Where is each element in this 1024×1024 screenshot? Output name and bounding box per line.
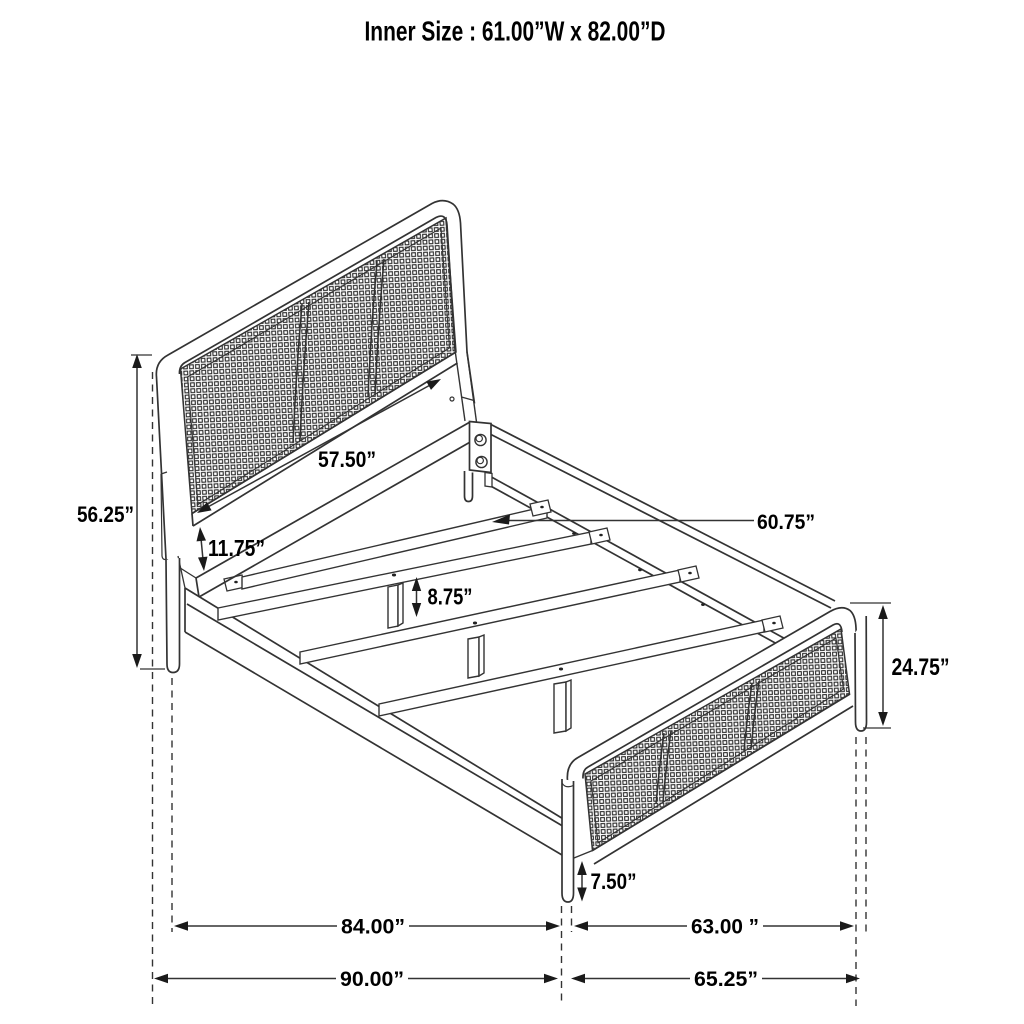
svg-text:11.75”: 11.75”	[208, 535, 265, 561]
svg-text:57.50”: 57.50”	[318, 447, 376, 472]
svg-text:90.00”: 90.00”	[340, 968, 404, 991]
svg-text:8.75”: 8.75”	[428, 584, 473, 610]
svg-text:7.50”: 7.50”	[591, 869, 637, 894]
svg-text:84.00”: 84.00”	[341, 916, 405, 939]
svg-text:24.75”: 24.75”	[892, 654, 950, 681]
svg-text:56.25”: 56.25”	[77, 502, 134, 527]
svg-text:63.00 ”: 63.00 ”	[691, 916, 759, 939]
svg-text:Inner Size : 61.00”W x 82.00”D: Inner Size : 61.00”W x 82.00”D	[365, 16, 666, 47]
svg-text:60.75”: 60.75”	[757, 511, 815, 534]
svg-text:65.25”: 65.25”	[694, 968, 758, 991]
